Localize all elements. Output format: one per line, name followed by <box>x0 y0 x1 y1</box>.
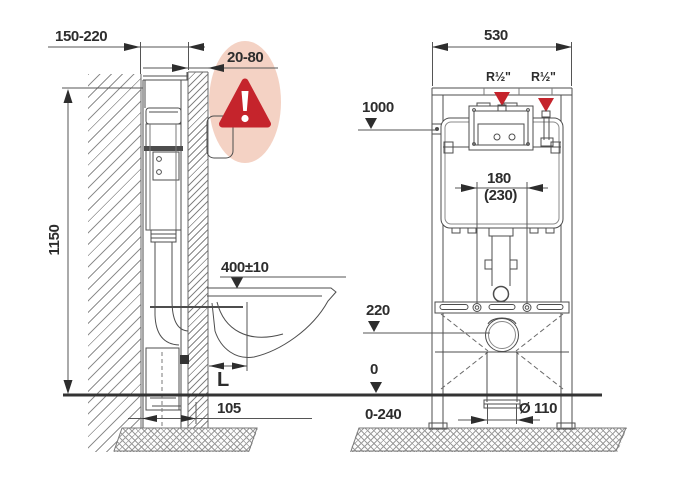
dim-outlet-height: 220 <box>366 303 390 318</box>
front-view <box>429 88 575 429</box>
toilet-bowl-profile <box>207 288 336 357</box>
dim-supply-right: R½" <box>531 71 556 84</box>
mounting-rail <box>435 302 569 313</box>
dim-bolt-spacing: 180 <box>487 171 511 186</box>
screed-outline-left <box>114 428 257 451</box>
cistern-side <box>144 108 183 230</box>
dim-below-floor-range: 0-240 <box>365 407 401 422</box>
dim-level-1000: 1000 <box>362 100 394 115</box>
dim-frame-width: 530 <box>484 28 508 43</box>
dim-drain-offset: 105 <box>217 401 241 416</box>
dim-supply-left: R½" <box>486 71 511 84</box>
dim-frame-height: 1150 <box>47 210 63 270</box>
flush-pipe-side <box>146 230 188 428</box>
fixing-point <box>180 355 189 364</box>
dim-cladding-range: 20-80 <box>227 50 263 65</box>
drain-pipe <box>484 352 520 408</box>
outlet-bend <box>486 318 519 352</box>
dim-floor-level: 0 <box>370 362 378 377</box>
screed-outline-right <box>351 428 626 451</box>
dim-bolt-spacing-alt: (230) <box>484 188 517 203</box>
flush-pipe-front <box>485 228 517 302</box>
dim-drain-diameter: Ø 110 <box>519 401 557 416</box>
diagram-linework <box>0 0 677 500</box>
dim-outlet-length: L <box>217 370 229 390</box>
dim-depth-range: 150-220 <box>55 29 107 44</box>
installation-diagram: 150-220 20-80 1150 400±10 L 105 530 R½" … <box>0 0 677 500</box>
supply-marker-right-icon <box>538 98 554 112</box>
flush-plate-box <box>469 103 533 150</box>
dim-bowl-height: 400±10 <box>221 260 269 275</box>
